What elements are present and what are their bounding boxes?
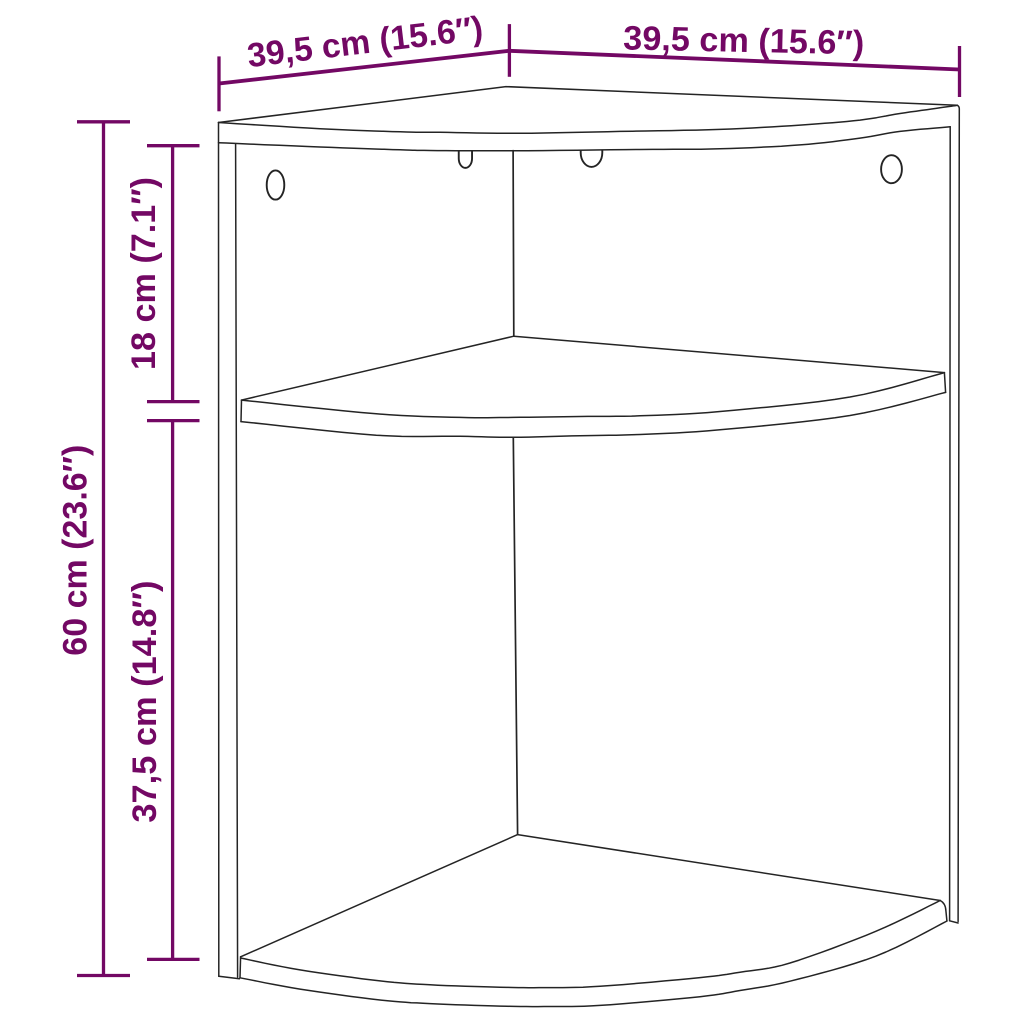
svg-text:37,5 cm (14.8″): 37,5 cm (14.8″) bbox=[126, 581, 164, 823]
svg-text:60 cm (23.6″): 60 cm (23.6″) bbox=[57, 445, 95, 656]
svg-text:39,5 cm (15.6″): 39,5 cm (15.6″) bbox=[623, 19, 865, 62]
svg-text:18 cm (7.1″): 18 cm (7.1″) bbox=[125, 177, 163, 370]
